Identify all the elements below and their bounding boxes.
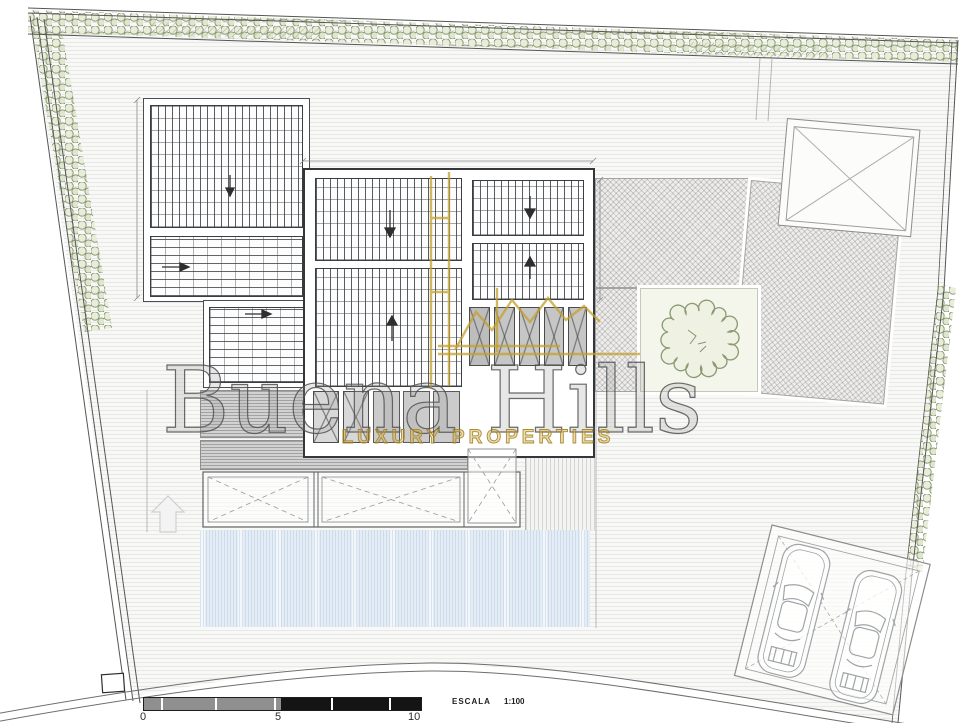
scale-tick xyxy=(389,698,391,710)
scale-tick xyxy=(161,698,163,710)
watermark: Buena Hills LUXURY PROPERTIES xyxy=(0,0,960,723)
site-plan-canvas: Buena Hills LUXURY PROPERTIES 0 5 10 ESC… xyxy=(0,0,960,723)
scale-tick xyxy=(215,698,217,710)
scale-number-10: 10 xyxy=(408,711,420,723)
scale-bar-segments xyxy=(143,697,422,711)
scale-label: ESCALA xyxy=(452,697,491,706)
scale-number-0: 0 xyxy=(140,711,146,723)
scale-ratio: 1:100 xyxy=(504,697,524,706)
scale-tick xyxy=(274,698,276,710)
watermark-tagline: LUXURY PROPERTIES xyxy=(342,427,615,448)
scale-bar-black-segment xyxy=(281,698,421,710)
scale-bar: 0 5 10 ESCALA 1:100 xyxy=(130,693,550,723)
scale-tick xyxy=(331,698,333,710)
scale-number-5: 5 xyxy=(275,711,281,723)
